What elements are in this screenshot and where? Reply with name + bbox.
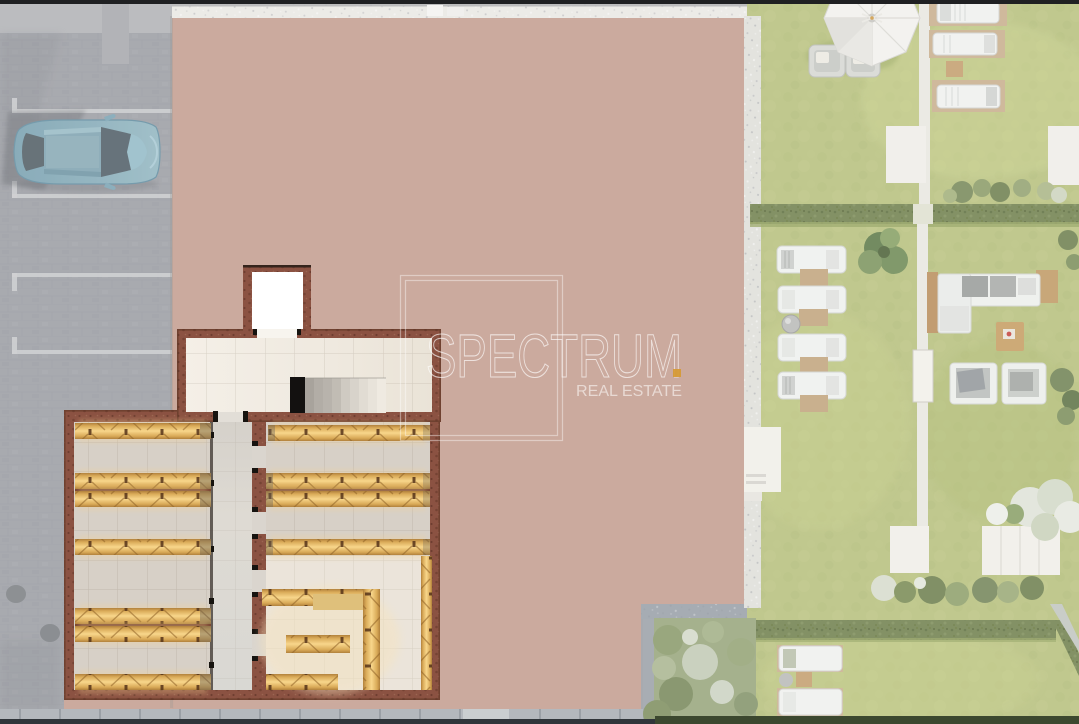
svg-text:SPECTRUM: SPECTRUM: [426, 322, 682, 390]
svg-text:REAL ESTATE: REAL ESTATE: [576, 383, 682, 400]
